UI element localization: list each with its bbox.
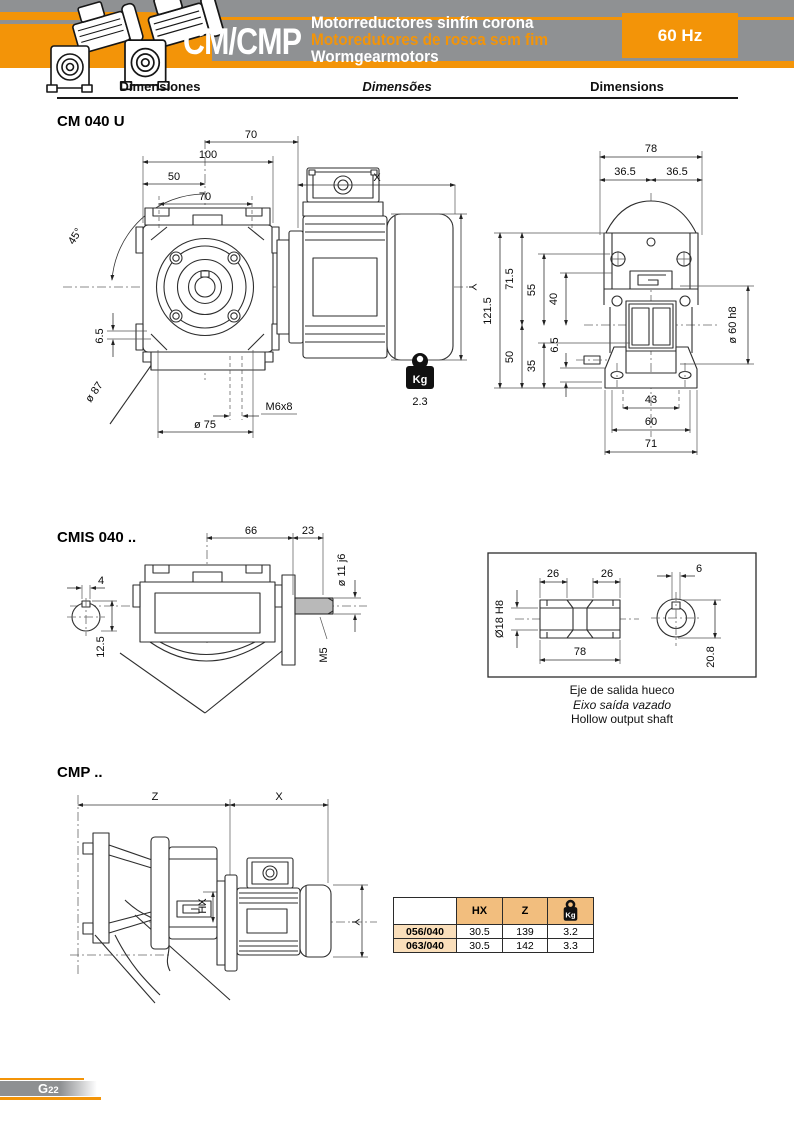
dim-d87: ø 87 — [83, 380, 105, 405]
dim-m6x8: M6x8 — [266, 401, 293, 413]
dim-71-5: 71.5 — [504, 268, 516, 289]
dim-x: X — [373, 172, 381, 184]
hollow-output-shaft-drawing: 26 26 78 Ø18 H8 6 20.8 — [487, 552, 757, 678]
weight-value: 2.3 — [412, 396, 427, 408]
dim-d60h8: ø 60 h8 — [727, 306, 739, 343]
gearbox-front-outline — [136, 208, 279, 370]
dim-23: 23 — [302, 525, 314, 537]
dim-6: 6 — [696, 563, 702, 575]
caption-pt: Eixo saída vazado — [487, 698, 757, 713]
hx-cell: 30.5 — [457, 939, 503, 953]
hollow-shaft-section — [540, 600, 620, 638]
dim-121-5: 121.5 — [482, 297, 494, 325]
frequency-badge: 60 Hz — [622, 13, 738, 58]
weight-icon-small: Kg — [562, 900, 579, 922]
z-cell: 142 — [503, 939, 548, 953]
dim-43: 43 — [645, 394, 657, 406]
dim-cmp-y: Y — [349, 918, 361, 926]
rear-view-outline — [576, 201, 698, 388]
kg-cell: 3.3 — [548, 939, 594, 953]
dim-20-8: 20.8 — [705, 646, 717, 667]
column-header-pt: Dimensões — [297, 79, 497, 95]
cmp-motor-outline — [217, 858, 331, 971]
catalog-page: CM/CMP Motorreductores sinfín corona Mot… — [0, 0, 794, 1123]
dim-35: 35 — [526, 360, 538, 372]
table-header-z: Z — [503, 898, 548, 925]
cm040u-front-view-drawing: 70 100 50 70 X 45° ø 87 6.5 ø 75 M6x8 — [55, 128, 475, 478]
dim-78-shaft: 78 — [574, 646, 586, 658]
dim-60: 60 — [645, 416, 657, 428]
cmp-dimension-table: HX Z Kg 056/040 30.5 139 3.2 063/040 30.… — [393, 897, 594, 953]
table-row: 056/040 30.5 139 3.2 — [394, 925, 594, 939]
dim-50: 50 — [504, 351, 516, 363]
dim-50: 50 — [168, 171, 180, 183]
footer-page-number: 22 — [48, 1085, 59, 1096]
footer-page-tab: G22 — [0, 1081, 97, 1096]
dim-z: Z — [152, 791, 159, 803]
dim-y: Y — [466, 283, 478, 291]
column-header-es: Dimensiones — [60, 79, 260, 95]
footer-page-letter: G — [38, 1081, 48, 1096]
dim-12-5: 12.5 — [95, 636, 107, 657]
dim-36-5-left: 36.5 — [614, 166, 635, 178]
cm040u-rear-view-drawing: 78 36.5 36.5 121.5 71.5 55 40 50 35 6.5 … — [480, 135, 790, 470]
dim-holes-70: 70 — [199, 191, 211, 203]
header-subtitles: Motorreductores sinfín corona Motoreduto… — [311, 15, 548, 66]
table-row: 063/040 30.5 142 3.3 — [394, 939, 594, 953]
cmp-gearbox-outline — [151, 837, 217, 949]
header-rule — [57, 97, 738, 99]
dim-6-5: 6.5 — [94, 328, 106, 343]
dim-26-left: 26 — [547, 568, 559, 580]
weight-unit-label: Kg — [413, 374, 428, 386]
dim-26-right: 26 — [601, 568, 613, 580]
footer-orange-line-bottom — [0, 1097, 101, 1100]
kg-cell: 3.2 — [548, 925, 594, 939]
product-code: CM/CMP — [183, 21, 301, 63]
table-header-blank — [394, 898, 457, 925]
subtitle-spanish: Motorreductores sinfín corona — [311, 15, 548, 32]
table-header-hx: HX — [457, 898, 503, 925]
dim-71: 71 — [645, 438, 657, 450]
shaft-cross-section — [67, 598, 105, 636]
dim-m5: M5 — [318, 647, 330, 662]
dim-rear-6-5: 6.5 — [549, 337, 561, 352]
caption-en: Hollow output shaft — [487, 712, 757, 727]
model-cell: 056/040 — [394, 925, 457, 939]
model-cell: 063/040 — [394, 939, 457, 953]
dim-100: 100 — [199, 149, 217, 161]
dim-d18h8: Ø18 H8 — [494, 600, 506, 638]
subtitle-english: Wormgearmotors — [311, 49, 548, 66]
dim-d11j6: ø 11 j6 — [336, 554, 348, 587]
weight-icon: Kg 2.3 — [406, 353, 434, 408]
caption-es: Eje de salida hueco — [487, 683, 757, 698]
cmis-gearbox-outline — [120, 565, 333, 713]
dim-78: 78 — [645, 143, 657, 155]
dim-36-5-right: 36.5 — [666, 166, 687, 178]
footer-orange-line-top — [0, 1078, 84, 1080]
dim-40: 40 — [548, 293, 560, 305]
hx-cell: 30.5 — [457, 925, 503, 939]
dim-66: 66 — [245, 525, 257, 537]
dim-hx: HX — [197, 898, 209, 914]
motor-side-outline — [277, 168, 453, 360]
dim-4: 4 — [98, 575, 104, 587]
weight-unit-small: Kg — [565, 910, 576, 919]
subtitle-portuguese: Motoredutores de rosca sem fim — [311, 32, 548, 49]
cmis040-side-view-drawing: 66 23 ø 11 j6 M5 4 12.5 — [55, 525, 455, 715]
table-header-kg: Kg — [548, 898, 594, 925]
section-title-cmp: CMP .. — [57, 764, 103, 781]
z-cell: 139 — [503, 925, 548, 939]
dim-45deg: 45° — [66, 226, 85, 246]
dim-x: X — [275, 791, 283, 803]
dim-55: 55 — [526, 284, 538, 296]
dim-top-70: 70 — [245, 129, 257, 141]
column-header-en: Dimensions — [527, 79, 727, 95]
table-header-row: HX Z Kg — [394, 898, 594, 925]
hollow-shaft-captions: Eje de salida hueco Eixo saída vazado Ho… — [487, 683, 757, 727]
dim-d75: ø 75 — [194, 419, 216, 431]
cmp-side-view-drawing: Z X HX — [55, 785, 395, 1013]
